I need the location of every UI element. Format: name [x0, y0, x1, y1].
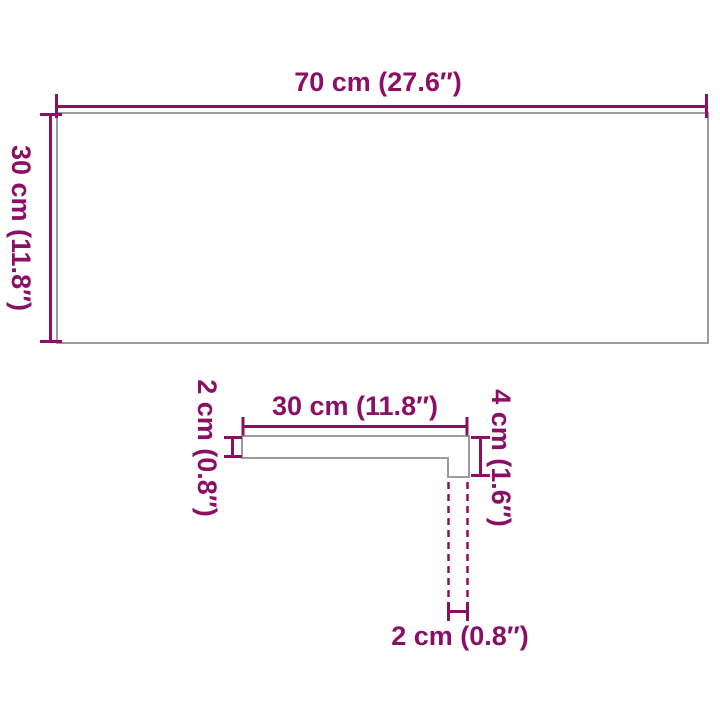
profile-thickness-label: 2 cm (0.8″) [192, 328, 222, 568]
profile-outline [242, 436, 469, 477]
top-view-panel-outline [57, 113, 708, 343]
dimension-diagram: 70 cm (27.6″) 30 cm (11.8″) 30 cm (11.8″… [0, 0, 720, 720]
profile-depth-label: 30 cm (11.8″) [235, 391, 475, 421]
nose-height-label: 4 cm (1.6″) [486, 338, 516, 578]
nose-depth-label: 2 cm (0.8″) [340, 621, 580, 651]
top-height-label: 30 cm (11.8″) [6, 108, 36, 348]
diagram-linework [0, 0, 720, 720]
top-width-label: 70 cm (27.6″) [258, 67, 498, 97]
